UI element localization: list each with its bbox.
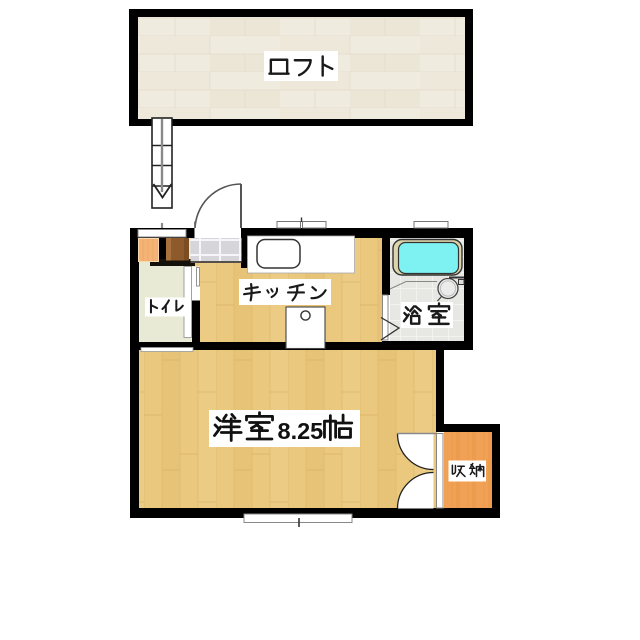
svg-text:8.25: 8.25 [278,418,324,444]
